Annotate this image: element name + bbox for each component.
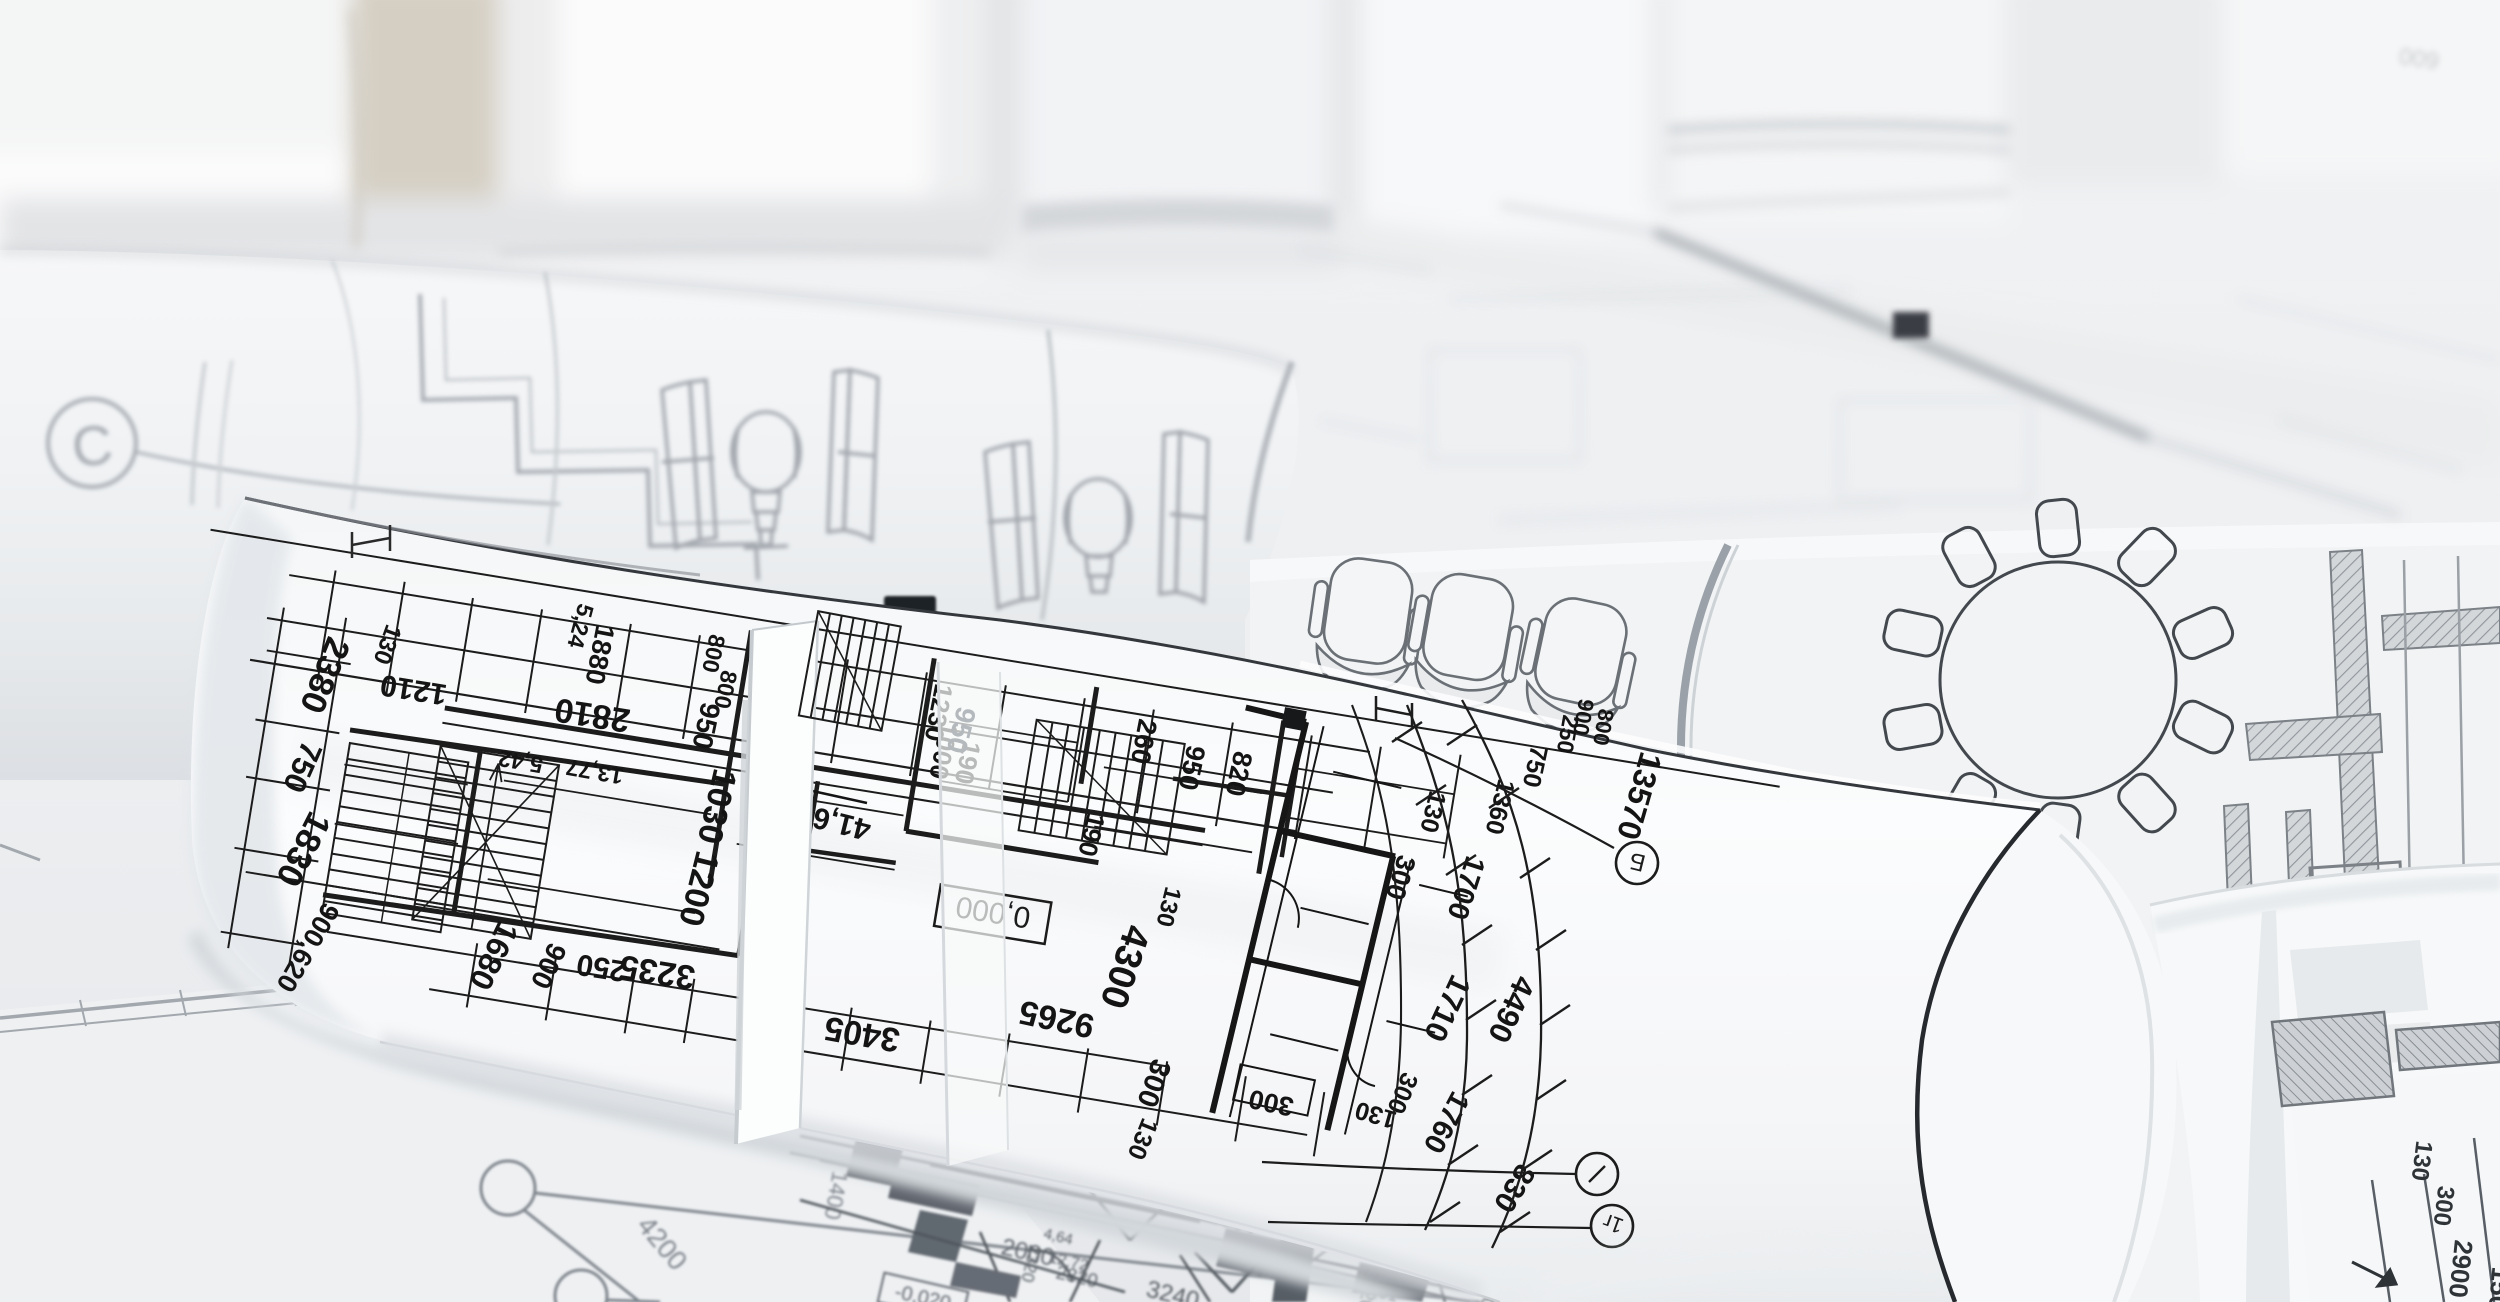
svg-text:300: 300 (2428, 1184, 2460, 1227)
svg-text:C: C (69, 412, 116, 479)
svg-text:2900: 2900 (2443, 1239, 2479, 1300)
svg-text:009: 009 (2397, 43, 2440, 75)
svg-text:130: 130 (2406, 1139, 2438, 1182)
